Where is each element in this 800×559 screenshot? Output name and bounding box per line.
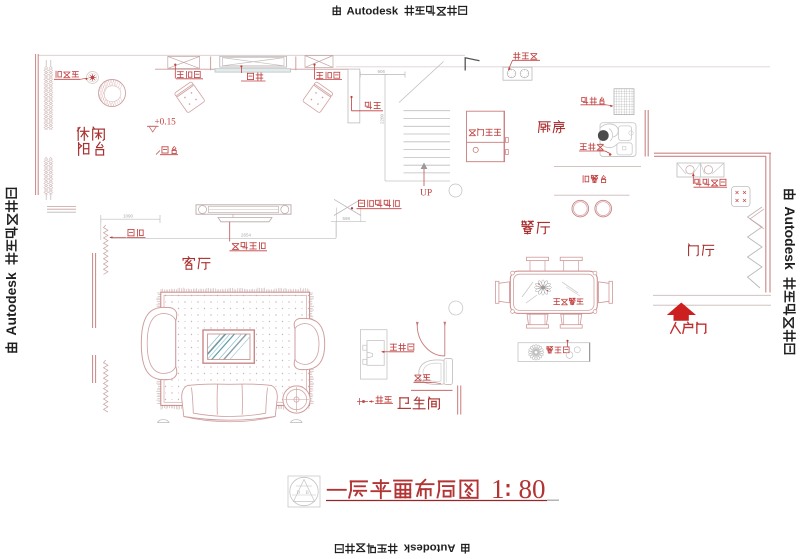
svg-text:906: 906	[378, 69, 386, 74]
svg-text:D: D	[297, 491, 301, 496]
svg-text:1090: 1090	[123, 214, 134, 219]
svg-text:2654: 2654	[241, 233, 252, 238]
svg-text:80: 80	[519, 474, 546, 504]
svg-text:Autodesk: Autodesk	[347, 5, 399, 17]
svg-text:2200: 2200	[380, 113, 385, 124]
svg-text:1: 1	[491, 474, 505, 504]
svg-text:598: 598	[343, 216, 351, 221]
svg-text:Autodesk: Autodesk	[403, 542, 455, 554]
svg-text:Autodesk: Autodesk	[3, 272, 19, 336]
svg-text:+0.15: +0.15	[155, 117, 177, 127]
svg-text:Autodesk: Autodesk	[782, 206, 798, 270]
svg-text:UP: UP	[420, 189, 432, 199]
